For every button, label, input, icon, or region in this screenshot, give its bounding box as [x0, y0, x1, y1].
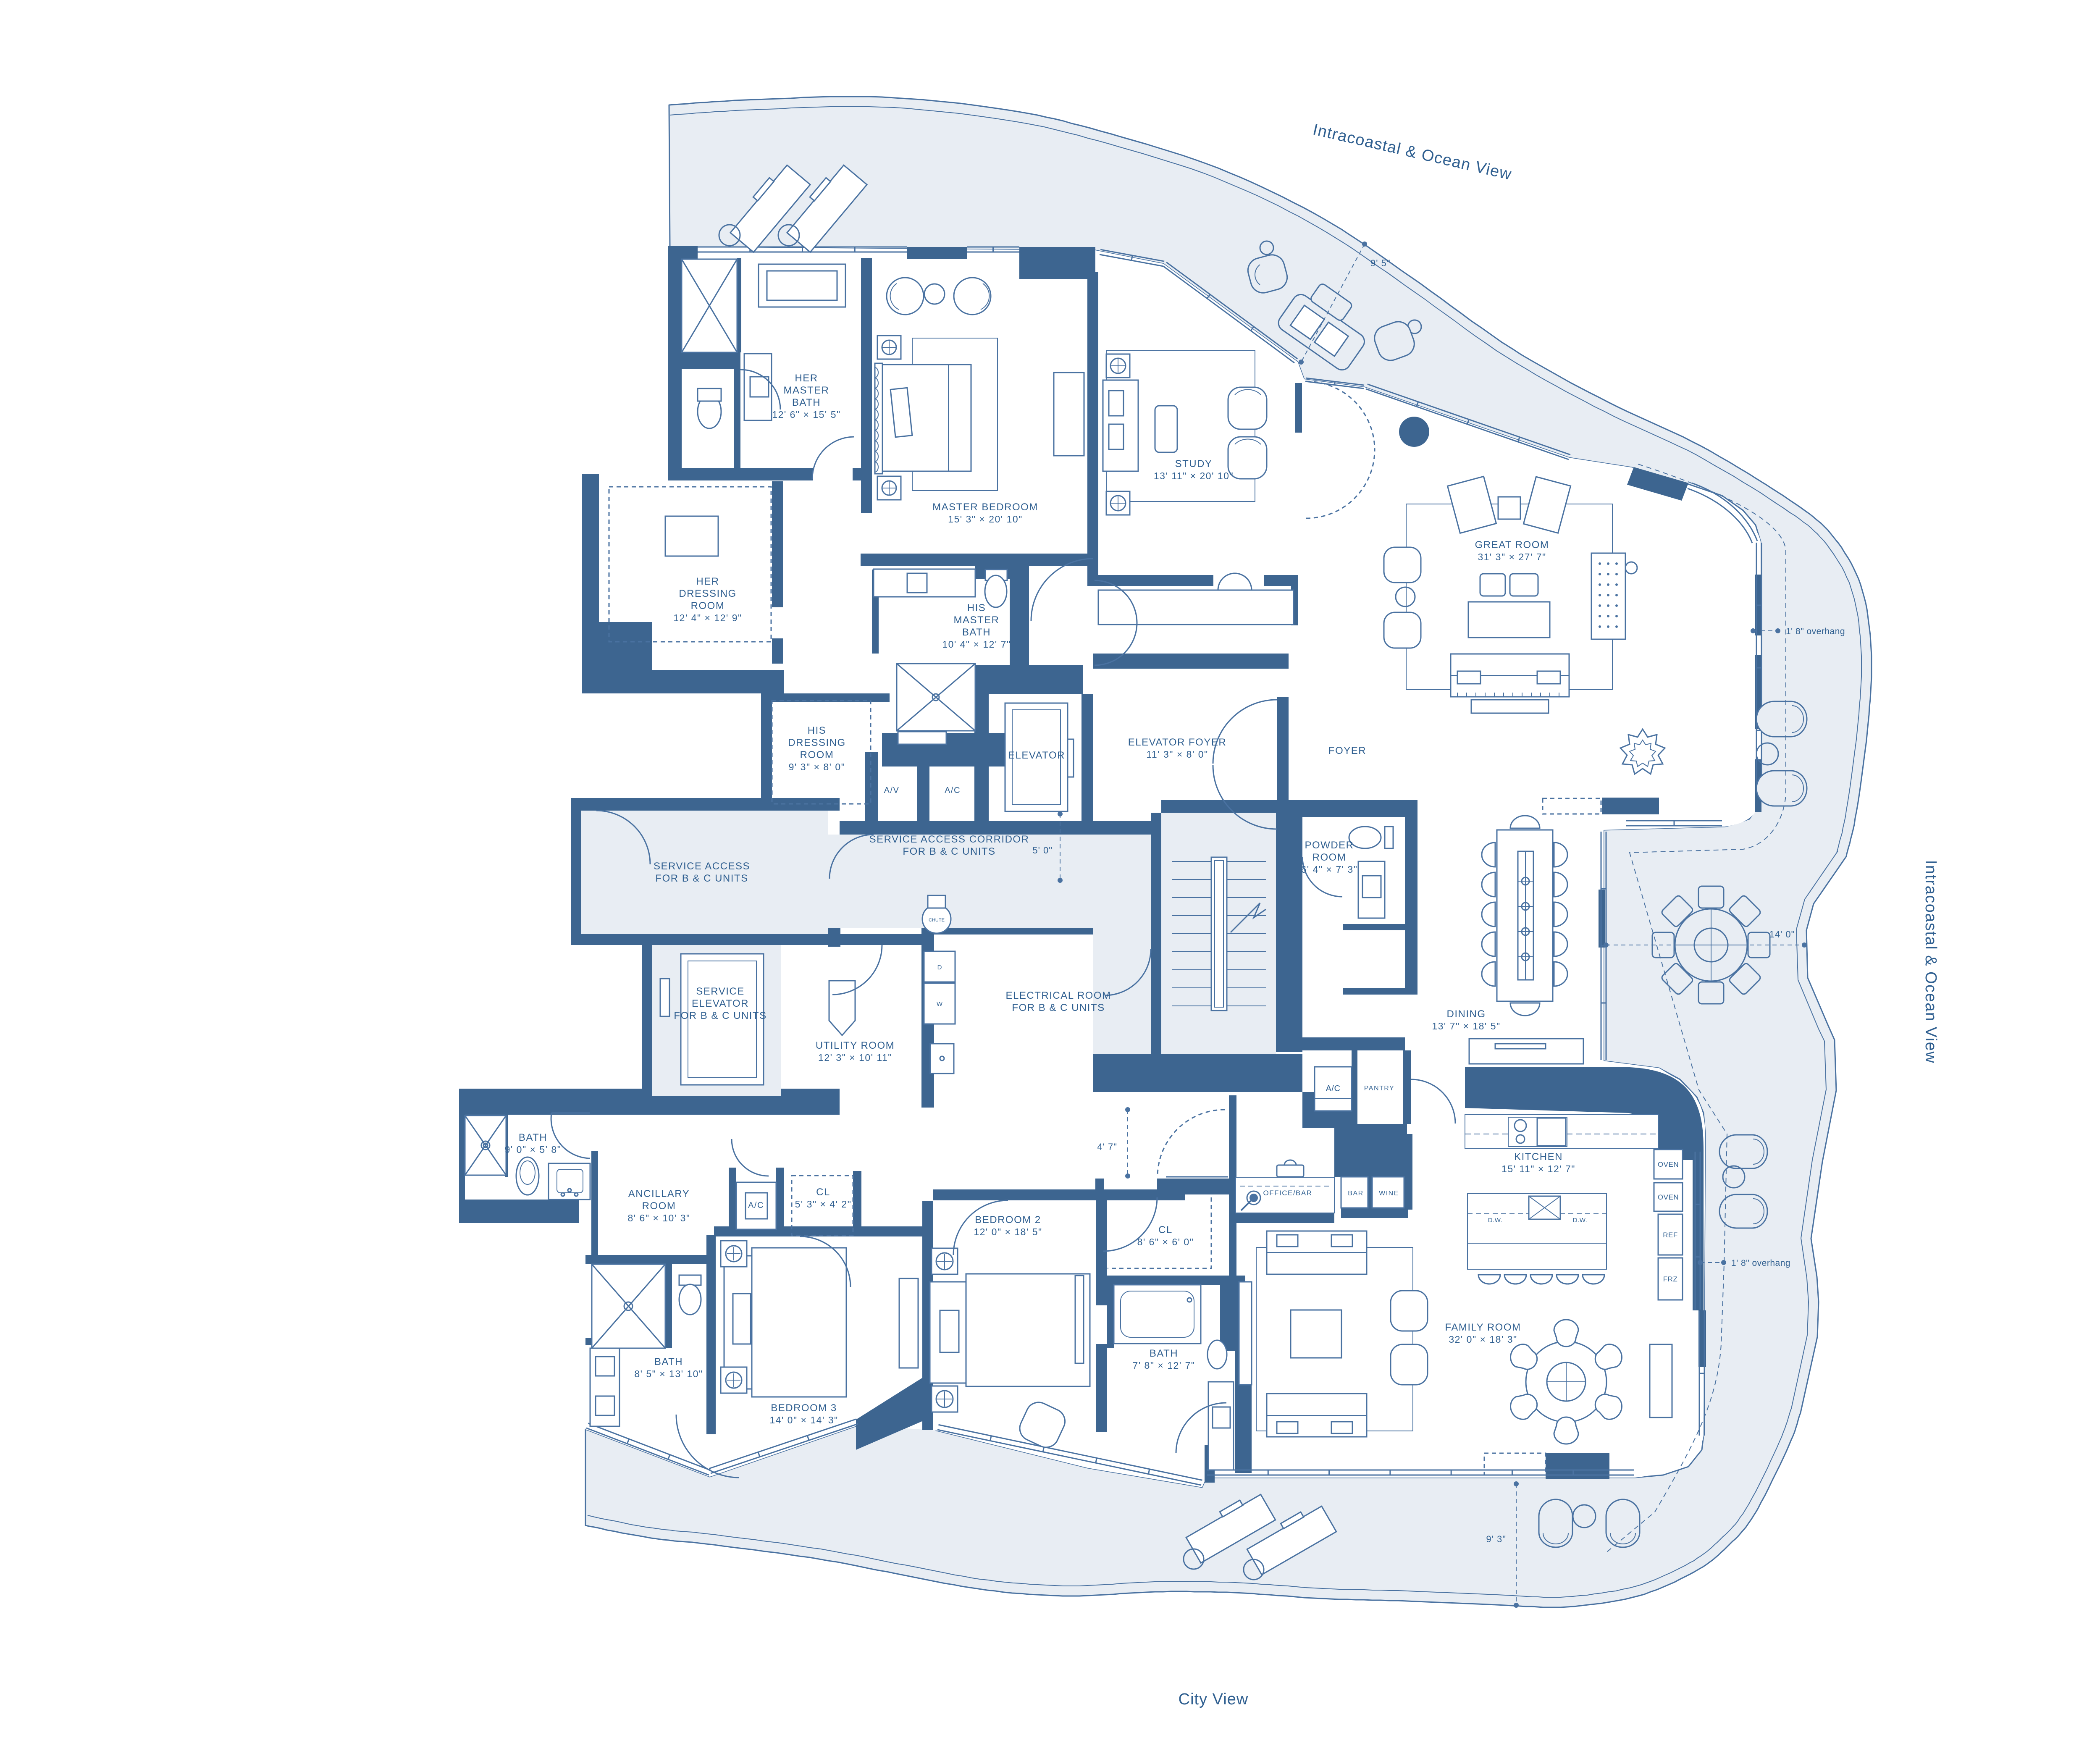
svg-text:ELEVATOR: ELEVATOR [692, 998, 749, 1009]
svg-text:15' 11" × 12' 7": 15' 11" × 12' 7" [1501, 1163, 1575, 1174]
svg-text:KITCHEN: KITCHEN [1514, 1151, 1563, 1163]
svg-text:D.W.: D.W. [1488, 1217, 1503, 1224]
svg-text:DRESSING: DRESSING [679, 588, 736, 599]
svg-text:A/C: A/C [748, 1201, 764, 1210]
svg-text:POWDER: POWDER [1305, 840, 1354, 851]
svg-text:DINING: DINING [1447, 1008, 1486, 1020]
svg-text:HIS: HIS [808, 725, 827, 736]
svg-text:CL: CL [816, 1186, 830, 1198]
svg-text:ROOM: ROOM [691, 600, 725, 612]
svg-text:FOR B & C UNITS: FOR B & C UNITS [674, 1010, 766, 1021]
svg-text:FOR B & C UNITS: FOR B & C UNITS [1012, 1002, 1105, 1013]
svg-text:FOR B & C UNITS: FOR B & C UNITS [903, 846, 995, 857]
svg-text:10' 4" × 12' 7": 10' 4" × 12' 7" [942, 639, 1011, 650]
svg-text:HER: HER [696, 576, 719, 587]
svg-text:HER: HER [795, 373, 818, 384]
svg-text:BATH: BATH [654, 1356, 683, 1368]
svg-text:9' 5": 9' 5" [1370, 258, 1391, 268]
svg-text:MASTER BEDROOM: MASTER BEDROOM [932, 501, 1038, 513]
svg-text:OVEN: OVEN [1658, 1160, 1679, 1168]
svg-text:BATH: BATH [519, 1132, 547, 1143]
svg-text:ROOM: ROOM [642, 1200, 676, 1212]
svg-text:CHUTE: CHUTE [929, 918, 945, 923]
svg-text:ELEVATOR: ELEVATOR [1008, 750, 1065, 761]
svg-text:14' 0": 14' 0" [1769, 929, 1795, 940]
svg-text:Intracoastal & Ocean View: Intracoastal & Ocean View [1922, 860, 1940, 1064]
svg-text:9' 0" × 5' 8": 9' 0" × 5' 8" [505, 1144, 562, 1155]
svg-text:ROOM: ROOM [1312, 852, 1347, 863]
svg-text:CL: CL [1158, 1224, 1173, 1236]
svg-text:8' 6" × 10' 3": 8' 6" × 10' 3" [627, 1213, 690, 1223]
svg-text:ELECTRICAL ROOM: ELECTRICAL ROOM [1006, 990, 1111, 1001]
svg-text:9' 3" × 8' 0": 9' 3" × 8' 0" [789, 761, 845, 772]
svg-text:A/C: A/C [945, 786, 961, 795]
svg-text:SERVICE ACCESS CORRIDOR: SERVICE ACCESS CORRIDOR [869, 834, 1029, 845]
svg-text:A/C: A/C [1326, 1084, 1341, 1093]
svg-text:12' 3" × 10' 11": 12' 3" × 10' 11" [818, 1052, 892, 1063]
svg-text:BATH: BATH [962, 627, 991, 638]
svg-text:6' 4" × 7' 3": 6' 4" × 7' 3" [1301, 864, 1358, 875]
svg-text:12' 0" × 18' 5": 12' 0" × 18' 5" [974, 1226, 1042, 1237]
svg-text:ANCILLARY: ANCILLARY [628, 1188, 690, 1200]
svg-text:PANTRY: PANTRY [1364, 1085, 1394, 1092]
svg-text:1' 8" overhang: 1' 8" overhang [1731, 1258, 1790, 1268]
svg-text:FOYER: FOYER [1328, 745, 1366, 756]
svg-text:WINE: WINE [1379, 1190, 1399, 1197]
svg-text:A/V: A/V [884, 786, 900, 795]
svg-text:ELEVATOR FOYER: ELEVATOR FOYER [1128, 737, 1226, 748]
svg-text:5' 3" × 4' 2": 5' 3" × 4' 2" [795, 1199, 852, 1210]
svg-text:12' 4" × 12' 9": 12' 4" × 12' 9" [673, 612, 742, 623]
svg-text:8' 6" × 6' 0": 8' 6" × 6' 0" [1137, 1236, 1194, 1247]
svg-text:BATH: BATH [1150, 1348, 1178, 1359]
svg-text:MASTER: MASTER [783, 385, 829, 396]
svg-text:FOR B & C UNITS: FOR B & C UNITS [655, 873, 748, 884]
svg-text:OVEN: OVEN [1658, 1193, 1679, 1201]
svg-text:MASTER: MASTER [953, 614, 999, 626]
svg-text:1' 8" overhang: 1' 8" overhang [1786, 627, 1845, 636]
svg-text:BEDROOM 3: BEDROOM 3 [771, 1402, 837, 1414]
svg-text:BAR: BAR [1348, 1190, 1363, 1197]
svg-text:7' 8" × 12' 7": 7' 8" × 12' 7" [1132, 1360, 1195, 1371]
svg-text:BEDROOM 2: BEDROOM 2 [975, 1214, 1041, 1226]
svg-text:BATH: BATH [792, 397, 821, 408]
svg-text:D: D [937, 964, 942, 971]
svg-text:13' 11" × 20' 10": 13' 11" × 20' 10" [1154, 470, 1234, 481]
svg-text:5' 0": 5' 0" [1032, 845, 1053, 856]
svg-text:12' 6" × 15' 5": 12' 6" × 15' 5" [772, 409, 840, 420]
svg-text:8' 5" × 13' 10": 8' 5" × 13' 10" [634, 1368, 703, 1379]
svg-text:OFFICE/BAR: OFFICE/BAR [1263, 1189, 1312, 1197]
svg-text:9' 3": 9' 3" [1486, 1534, 1506, 1544]
svg-text:11' 3" × 8' 0": 11' 3" × 8' 0" [1146, 749, 1208, 760]
svg-text:City View: City View [1179, 1690, 1249, 1708]
svg-text:HIS: HIS [967, 602, 986, 614]
svg-text:4' 7": 4' 7" [1097, 1142, 1117, 1152]
svg-text:ROOM: ROOM [800, 749, 834, 761]
svg-text:15' 3" × 20' 10": 15' 3" × 20' 10" [948, 514, 1023, 525]
svg-text:W: W [937, 1000, 943, 1008]
svg-text:14' 0" × 14' 3": 14' 0" × 14' 3" [769, 1415, 838, 1425]
svg-text:GREAT ROOM: GREAT ROOM [1475, 539, 1549, 551]
svg-text:FRZ: FRZ [1663, 1275, 1678, 1283]
svg-text:REF: REF [1663, 1231, 1678, 1239]
svg-text:SERVICE: SERVICE [696, 986, 744, 997]
svg-text:D.W.: D.W. [1573, 1217, 1588, 1224]
svg-text:13' 7" × 18' 5": 13' 7" × 18' 5" [1432, 1021, 1500, 1032]
svg-text:SERVICE ACCESS: SERVICE ACCESS [654, 861, 750, 872]
svg-text:32' 0" × 18' 3": 32' 0" × 18' 3" [1449, 1334, 1517, 1345]
svg-text:STUDY: STUDY [1175, 458, 1213, 470]
svg-text:UTILITY ROOM: UTILITY ROOM [816, 1040, 895, 1051]
svg-text:31' 3" × 27' 7": 31' 3" × 27' 7" [1478, 551, 1546, 562]
svg-text:DRESSING: DRESSING [788, 737, 845, 748]
svg-text:FAMILY ROOM: FAMILY ROOM [1445, 1322, 1521, 1333]
